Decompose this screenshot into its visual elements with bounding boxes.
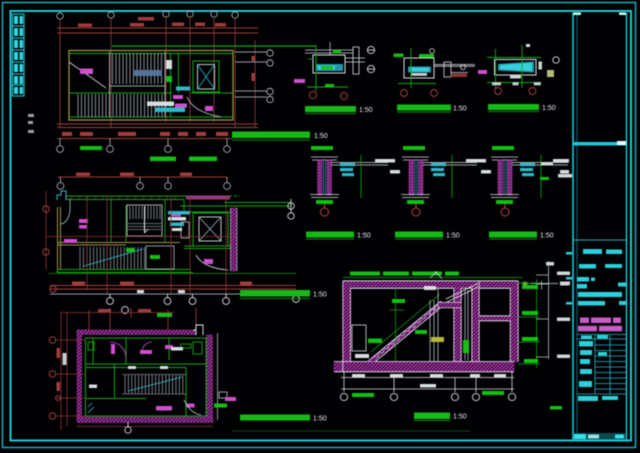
svg-text:1:50: 1:50 — [542, 105, 556, 112]
svg-text:1:50: 1:50 — [540, 233, 554, 240]
svg-text:1:50: 1:50 — [446, 233, 460, 240]
svg-text:1:50: 1:50 — [453, 414, 467, 421]
svg-text:1:50: 1:50 — [359, 107, 373, 114]
svg-text:1:50: 1:50 — [313, 416, 327, 423]
svg-text:1:50: 1:50 — [453, 106, 467, 113]
svg-text:1:50: 1:50 — [313, 292, 327, 299]
svg-text:1:50: 1:50 — [314, 133, 328, 140]
svg-text:1:50: 1:50 — [357, 233, 371, 240]
